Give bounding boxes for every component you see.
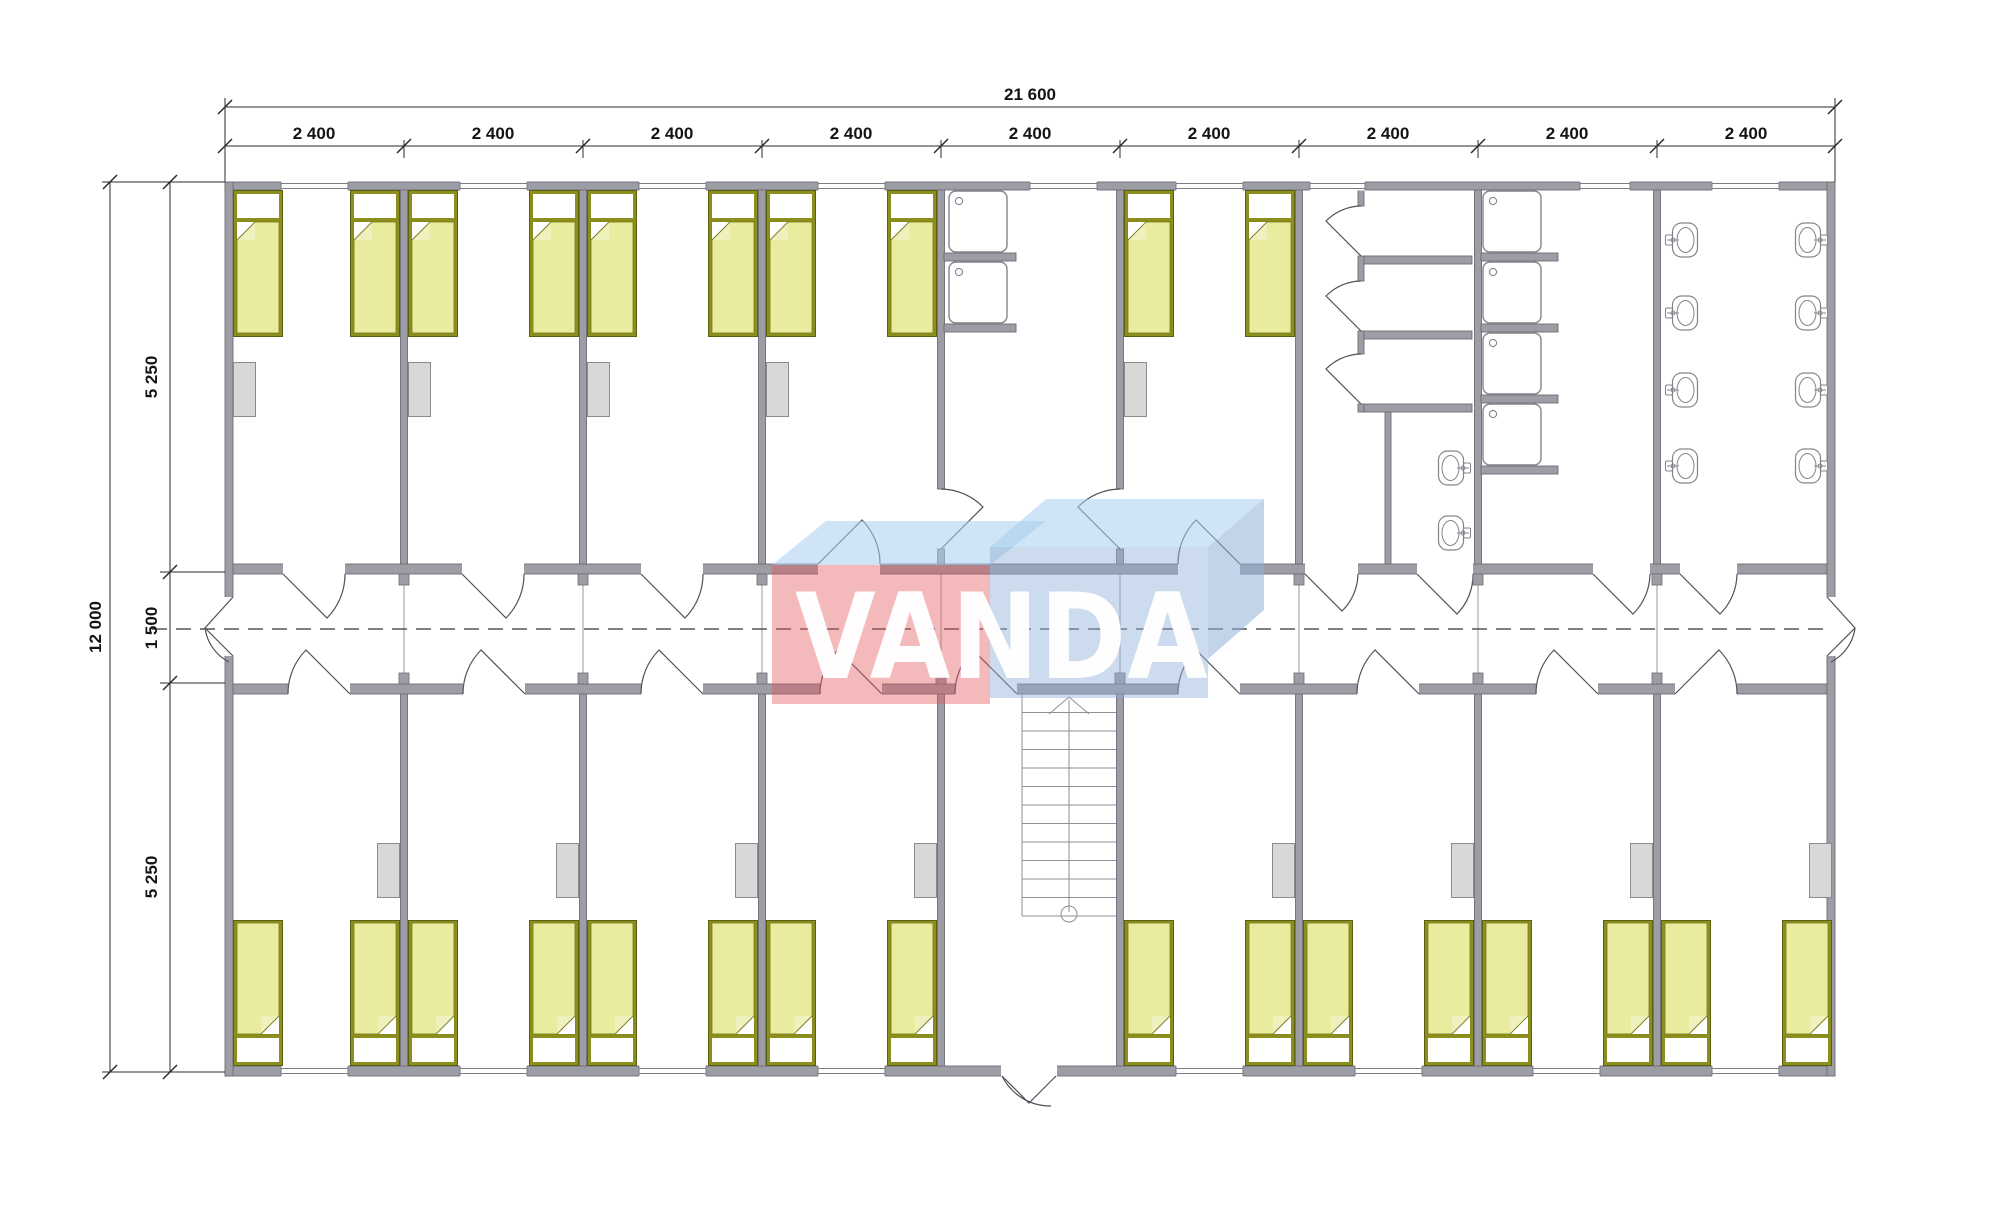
bed (409, 921, 458, 1066)
shower-tray (1483, 262, 1541, 323)
wardrobe (767, 363, 789, 417)
bed (1604, 921, 1653, 1066)
bed (1125, 191, 1174, 337)
washbasin (1796, 373, 1828, 407)
bed (767, 921, 816, 1066)
dim-bay-7: 2 400 (1367, 124, 1410, 144)
bed (588, 191, 637, 337)
dim-bay-6: 2 400 (1188, 124, 1231, 144)
dim-total-height: 12 000 (86, 601, 106, 653)
wardrobe (736, 844, 758, 898)
washbasin (1666, 223, 1698, 257)
south-exit-door (1002, 1076, 1056, 1103)
dim-bay-1: 2 400 (293, 124, 336, 144)
washbasin (1666, 373, 1698, 407)
bed (234, 921, 283, 1066)
wardrobe (557, 844, 579, 898)
bed (1304, 921, 1353, 1066)
bed (351, 191, 400, 337)
bed (709, 921, 758, 1066)
floor-plan-canvas: VANDA 21 600 2 400 2 400 2 400 2 400 2 4… (0, 0, 2000, 1219)
bed (1783, 921, 1832, 1066)
dim-bay-5: 2 400 (1009, 124, 1052, 144)
dim-seg-mid: 1 500 (142, 607, 162, 650)
vanda-watermark-text: VANDA (795, 568, 1160, 711)
bed (409, 191, 458, 337)
bed (530, 921, 579, 1066)
bed (1125, 921, 1174, 1066)
dim-bay-9: 2 400 (1725, 124, 1768, 144)
shower-tray (1483, 191, 1541, 252)
wardrobe (1452, 844, 1474, 898)
dim-bay-4: 2 400 (830, 124, 873, 144)
bed (1246, 191, 1295, 337)
bed (767, 191, 816, 337)
dim-bay-3: 2 400 (651, 124, 694, 144)
dim-total-width: 21 600 (1004, 85, 1056, 105)
dim-bay-2: 2 400 (472, 124, 515, 144)
bed (1662, 921, 1711, 1066)
shower-tray (1483, 333, 1541, 394)
bed (351, 921, 400, 1066)
bed (1425, 921, 1474, 1066)
stairs (1022, 694, 1116, 922)
washbasin (1439, 451, 1471, 485)
dim-seg-bot: 5 250 (142, 856, 162, 899)
washbasin (1666, 449, 1698, 483)
bed (888, 191, 937, 337)
washbasin (1796, 449, 1828, 483)
washbasin (1796, 223, 1828, 257)
bed (588, 921, 637, 1066)
shower-tray (949, 262, 1007, 323)
washbasin (1666, 296, 1698, 330)
bed (888, 921, 937, 1066)
bed (1246, 921, 1295, 1066)
bed (1483, 921, 1532, 1066)
bed (709, 191, 758, 337)
wardrobe (1125, 363, 1147, 417)
wardrobe (1273, 844, 1295, 898)
wardrobe (378, 844, 400, 898)
wardrobe (409, 363, 431, 417)
bed (234, 191, 283, 337)
wardrobe (1810, 844, 1832, 898)
washbasin (1439, 516, 1471, 550)
wardrobe (1631, 844, 1653, 898)
bed (530, 191, 579, 337)
washbasin (1796, 296, 1828, 330)
wardrobe (234, 363, 256, 417)
wardrobe (915, 844, 937, 898)
dim-bay-8: 2 400 (1546, 124, 1589, 144)
dim-seg-top: 5 250 (142, 356, 162, 399)
wardrobe (588, 363, 610, 417)
shower-tray (949, 191, 1007, 252)
shower-tray (1483, 404, 1541, 465)
